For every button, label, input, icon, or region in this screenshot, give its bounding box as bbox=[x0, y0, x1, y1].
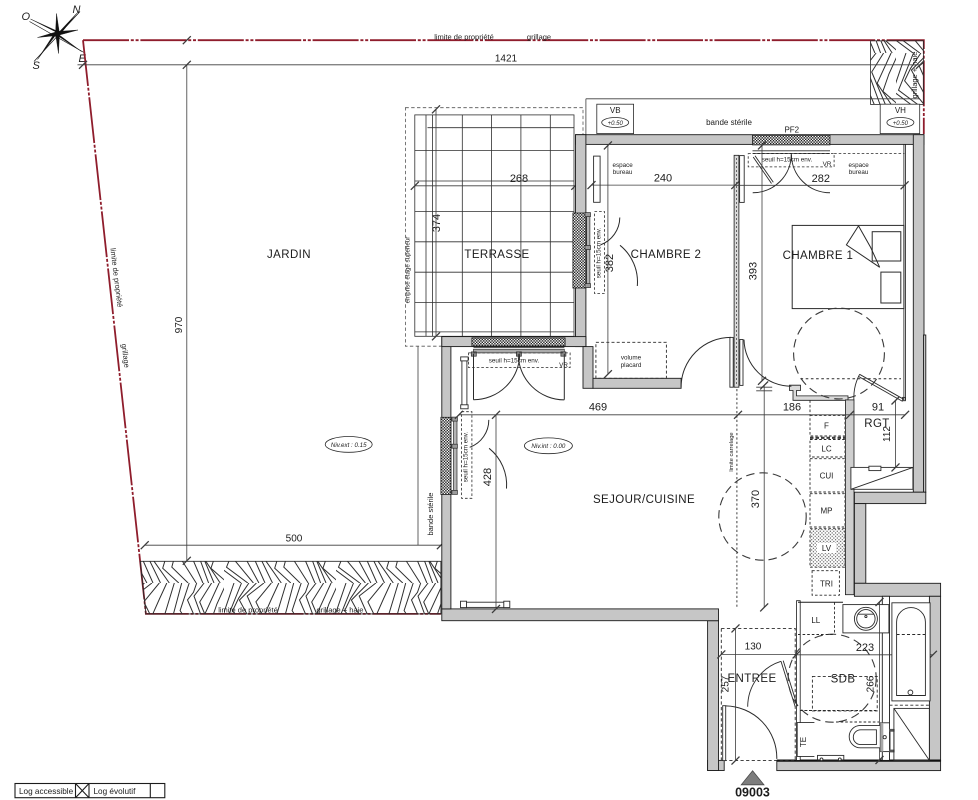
svg-text:257: 257 bbox=[721, 675, 732, 692]
svg-text:bande stérile: bande stérile bbox=[426, 493, 435, 536]
svg-text:370: 370 bbox=[750, 490, 762, 508]
svg-text:CHAMBRE 2: CHAMBRE 2 bbox=[631, 249, 702, 261]
svg-text:268: 268 bbox=[510, 173, 528, 185]
svg-text:223: 223 bbox=[856, 642, 874, 654]
svg-text:seuil h=15cm env.: seuil h=15cm env. bbox=[762, 156, 813, 163]
svg-text:VH: VH bbox=[895, 106, 906, 115]
svg-text:500: 500 bbox=[286, 534, 303, 545]
svg-text:Niv.int : 0.00: Niv.int : 0.00 bbox=[531, 443, 565, 450]
svg-text:186: 186 bbox=[783, 402, 801, 414]
svg-text:limite carrelage: limite carrelage bbox=[729, 432, 735, 471]
svg-text:LL: LL bbox=[811, 616, 820, 625]
svg-text:F: F bbox=[824, 422, 829, 431]
svg-text:JARDIN: JARDIN bbox=[267, 249, 311, 261]
svg-text:+0.50: +0.50 bbox=[608, 121, 624, 127]
svg-text:282: 282 bbox=[812, 173, 830, 185]
svg-text:espace: espace bbox=[612, 162, 633, 169]
svg-text:382: 382 bbox=[604, 254, 616, 272]
svg-text:970: 970 bbox=[174, 316, 185, 333]
svg-text:espace: espace bbox=[848, 162, 869, 169]
svg-text:grillage + haie: grillage + haie bbox=[317, 606, 364, 615]
svg-text:VB: VB bbox=[610, 106, 621, 115]
svg-text:O: O bbox=[22, 11, 31, 23]
svg-text:volume: volume bbox=[621, 355, 642, 362]
svg-text:MP: MP bbox=[821, 507, 833, 516]
svg-text:91: 91 bbox=[872, 402, 884, 414]
svg-text:469: 469 bbox=[589, 402, 607, 414]
svg-text:bureau: bureau bbox=[613, 169, 633, 176]
svg-text:Log accessible: Log accessible bbox=[19, 787, 74, 796]
svg-text:CUI: CUI bbox=[820, 472, 834, 481]
svg-text:seuil h=15cm env.: seuil h=15cm env. bbox=[596, 228, 603, 279]
svg-text:VR: VR bbox=[823, 161, 832, 168]
svg-text:+0.50: +0.50 bbox=[893, 121, 909, 127]
svg-text:Log évolutif: Log évolutif bbox=[94, 787, 137, 796]
svg-text:1421: 1421 bbox=[495, 54, 518, 65]
svg-text:393: 393 bbox=[748, 262, 760, 280]
svg-text:SDB: SDB bbox=[831, 674, 856, 686]
svg-text:374: 374 bbox=[431, 214, 443, 232]
svg-text:428: 428 bbox=[482, 468, 494, 486]
svg-text:limite de propriété: limite de propriété bbox=[218, 606, 278, 615]
svg-text:112: 112 bbox=[882, 426, 893, 442]
svg-text:N: N bbox=[73, 4, 81, 16]
svg-text:09003: 09003 bbox=[735, 786, 770, 800]
svg-text:S: S bbox=[33, 60, 41, 72]
svg-text:ENTREE: ENTREE bbox=[727, 673, 776, 685]
svg-text:seuil h=15cm env.: seuil h=15cm env. bbox=[463, 432, 470, 483]
svg-text:grillage + haie: grillage + haie bbox=[910, 52, 919, 99]
svg-text:Niv.ext : 0.15: Niv.ext : 0.15 bbox=[331, 442, 367, 449]
svg-text:VR: VR bbox=[559, 362, 568, 369]
svg-text:TRI: TRI bbox=[820, 580, 833, 589]
svg-text:130: 130 bbox=[745, 642, 762, 653]
svg-text:SEJOUR/CUISINE: SEJOUR/CUISINE bbox=[593, 494, 695, 506]
svg-text:bande stérile: bande stérile bbox=[706, 118, 752, 127]
svg-text:PF2: PF2 bbox=[784, 126, 799, 135]
svg-text:LV: LV bbox=[822, 544, 832, 553]
svg-text:limite de propriété: limite de propriété bbox=[434, 33, 494, 42]
svg-text:TERRASSE: TERRASSE bbox=[464, 249, 529, 261]
svg-text:placard: placard bbox=[621, 362, 642, 369]
svg-text:266: 266 bbox=[866, 675, 877, 692]
svg-text:bureau: bureau bbox=[849, 169, 869, 176]
svg-text:emprise étage supérieur: emprise étage supérieur bbox=[405, 237, 412, 304]
svg-text:grillage: grillage bbox=[527, 33, 551, 42]
svg-text:TE: TE bbox=[799, 737, 808, 747]
svg-text:seuil h=15cm env.: seuil h=15cm env. bbox=[489, 357, 540, 364]
svg-text:CHAMBRE 1: CHAMBRE 1 bbox=[783, 250, 854, 262]
svg-text:LC: LC bbox=[821, 445, 831, 454]
svg-text:240: 240 bbox=[654, 173, 672, 185]
